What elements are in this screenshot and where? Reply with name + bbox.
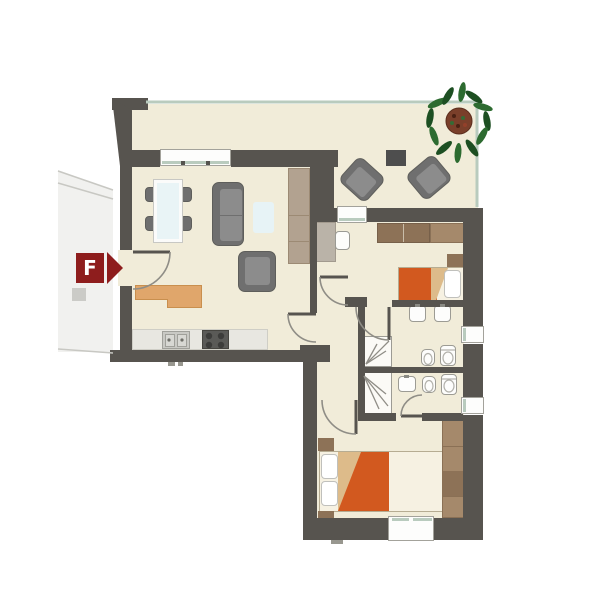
shower-symbol bbox=[364, 376, 388, 409]
sink-drains bbox=[167, 338, 183, 341]
living-hall-door-swing bbox=[288, 314, 316, 342]
stove-burners bbox=[206, 333, 224, 348]
bathroom2-door-swing bbox=[401, 395, 422, 416]
arrow-right-icon bbox=[107, 252, 123, 284]
fixture-details bbox=[404, 304, 456, 392]
bathroom1-door-swing bbox=[356, 307, 389, 340]
entrance-marker-label: F bbox=[83, 256, 97, 280]
entrance-marker-f: F bbox=[76, 253, 104, 283]
shower-symbol bbox=[366, 341, 389, 364]
entry-door-swing bbox=[133, 252, 170, 289]
plant-icon bbox=[425, 82, 494, 164]
kids-room-door-swing bbox=[320, 277, 348, 305]
floor-plan: F bbox=[0, 0, 600, 600]
window-handles bbox=[181, 161, 210, 165]
master-bedroom-door-swing bbox=[322, 400, 356, 434]
